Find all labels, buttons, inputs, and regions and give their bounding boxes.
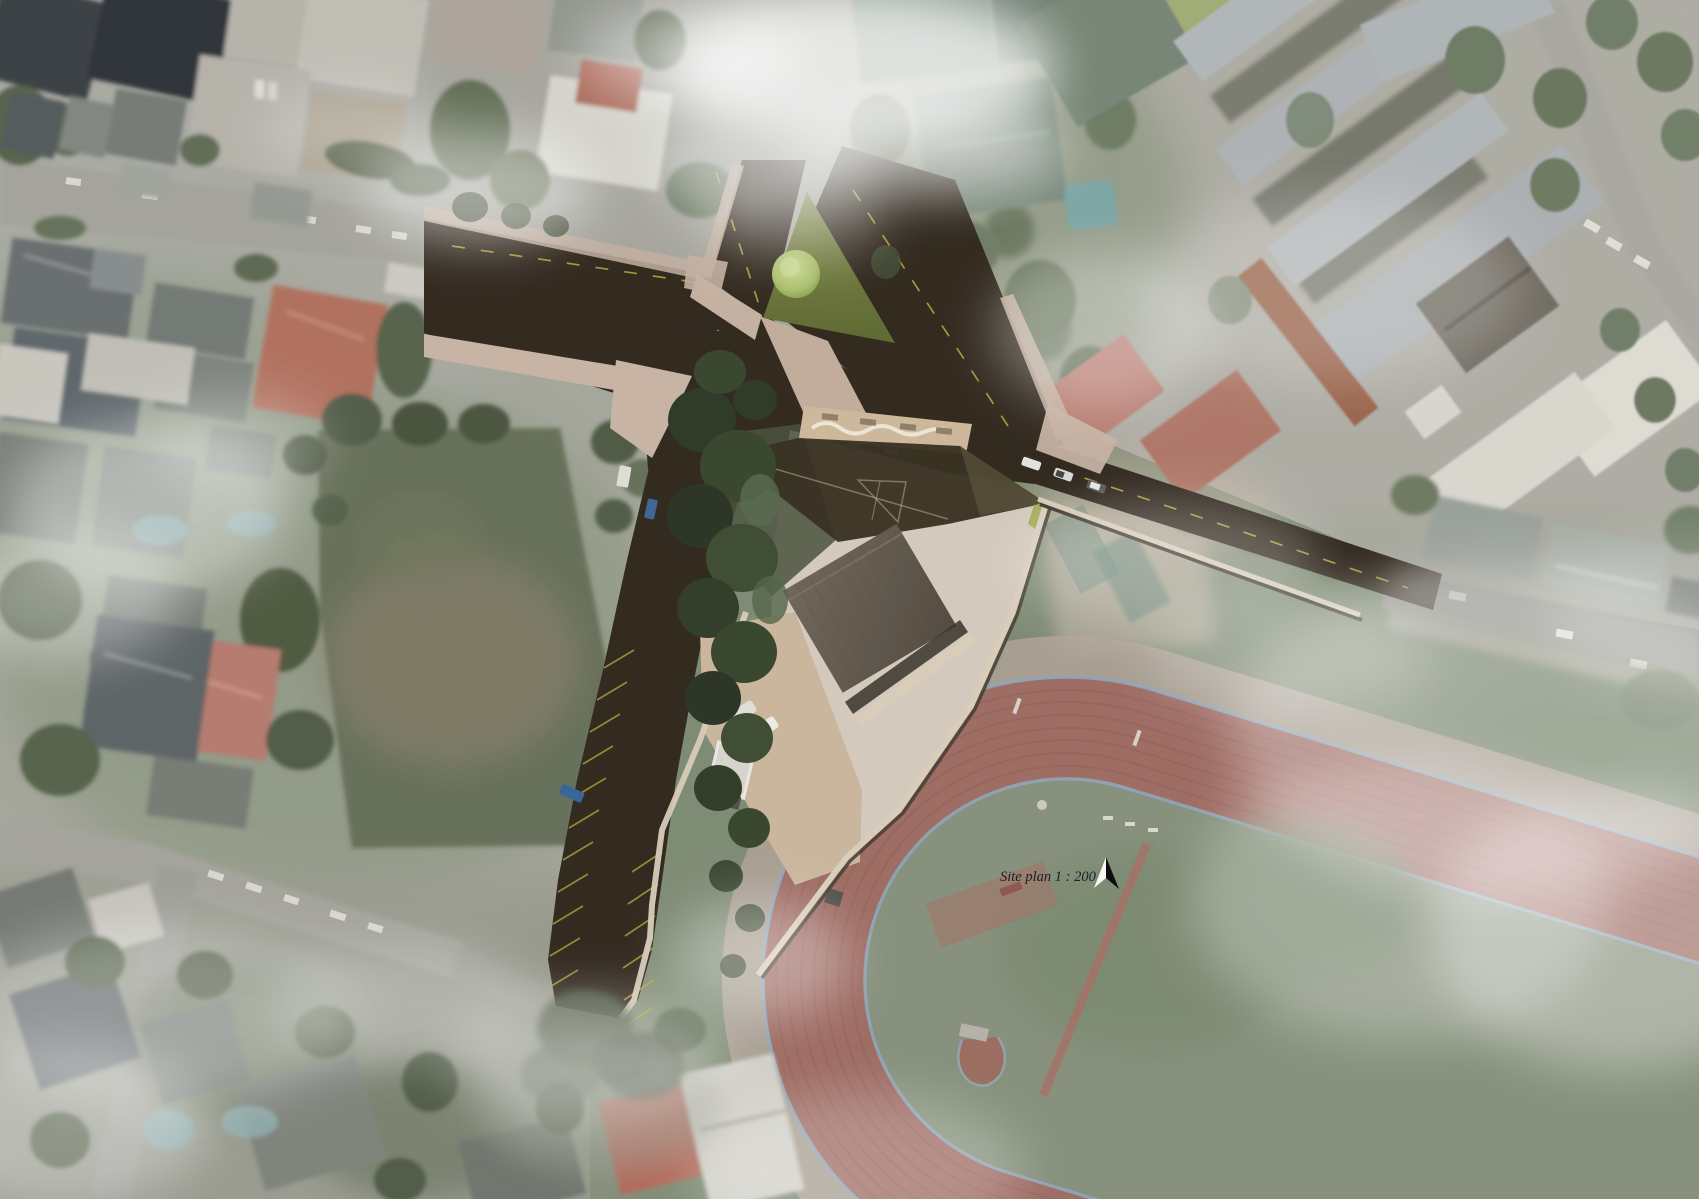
svg-text:Site plan 1 : 200: Site plan 1 : 200 xyxy=(1000,869,1097,885)
